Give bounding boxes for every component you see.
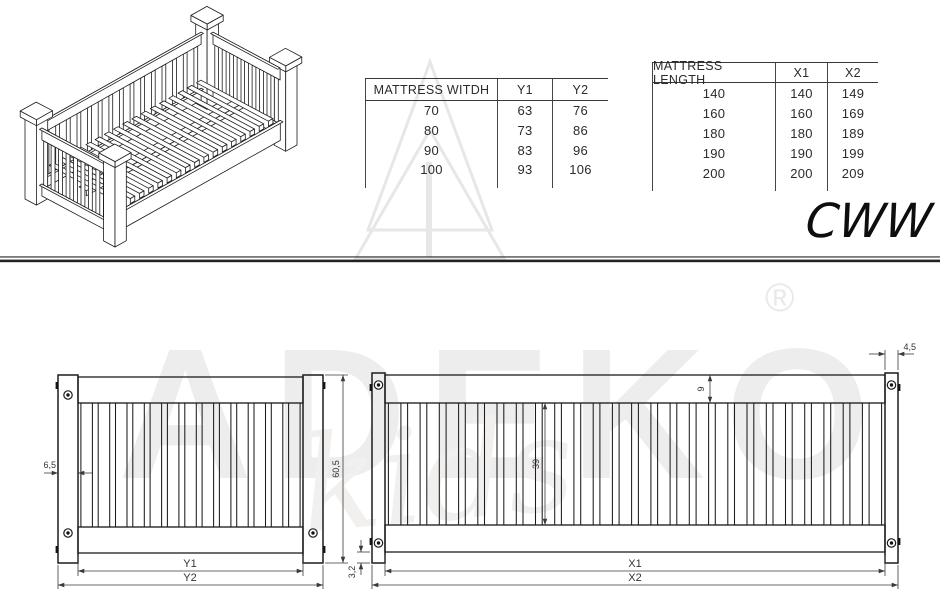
mattress-width-table: MATTRESS WITDHY1Y27063768073869083961009… [365, 78, 608, 188]
table-border-extension [652, 183, 775, 191]
table-cell: 190 [775, 143, 827, 163]
table-border-extension [365, 180, 497, 188]
side-panel-front-view [370, 373, 901, 563]
dim-label-bottom-overhang: 3,2 [347, 566, 357, 579]
table-cell: 140 [652, 83, 775, 103]
technical-drawing-page: ADEKO kids ® [0, 0, 940, 590]
dim-label-x2: X2 [628, 572, 641, 584]
dim-label-y1: Y1 [183, 558, 196, 570]
table-cell: 160 [652, 103, 775, 123]
table-cell: 73 [497, 121, 552, 141]
table-cell: 180 [775, 123, 827, 143]
table-cell: 76 [552, 101, 608, 121]
product-code: CWW [803, 194, 933, 249]
dim-label-y-post-width: 6,5 [43, 460, 56, 470]
dim-label-x-post-width: 4,5 [903, 342, 916, 352]
table-cell: 190 [652, 143, 775, 163]
column-header: X1 [775, 63, 827, 82]
table-cell: 90 [365, 140, 497, 160]
dim-label-rail-height: 9 [696, 386, 706, 391]
table-cell: 100 [365, 160, 497, 180]
table-cell: 199 [827, 143, 878, 163]
table-cell: 96 [552, 140, 608, 160]
table-border-extension [552, 180, 608, 188]
column-header: Y2 [552, 79, 608, 100]
dim-label-x1: X1 [628, 558, 641, 570]
table-cell: 93 [497, 160, 552, 180]
table-cell: 189 [827, 123, 878, 143]
table-cell: 63 [497, 101, 552, 121]
table-border-extension [775, 183, 827, 191]
table-border-extension [827, 183, 878, 191]
table-cell: 140 [775, 83, 827, 103]
column-header: X2 [827, 63, 878, 82]
table-border-extension [497, 180, 552, 188]
table-cell: 200 [775, 163, 827, 183]
table-cell: 149 [827, 83, 878, 103]
table-cell: 80 [365, 121, 497, 141]
table-cell: 106 [552, 160, 608, 180]
dim-label-y-total-height: 60,5 [331, 460, 341, 478]
table-cell: 160 [775, 103, 827, 123]
headboard-front-view [56, 375, 326, 563]
column-header: Y1 [497, 79, 552, 100]
dim-label-y2: Y2 [183, 572, 196, 584]
table-cell: 180 [652, 123, 775, 143]
table-cell: 209 [827, 163, 878, 183]
column-header: MATTRESS LENGTH [652, 63, 775, 82]
column-header: MATTRESS WITDH [365, 79, 497, 100]
table-cell: 83 [497, 140, 552, 160]
bed-isometric-view [20, 6, 302, 247]
mattress-length-table: MATTRESS LENGTHX1X2140140149160160169180… [652, 62, 878, 191]
dim-label-slat-height: 39 [531, 459, 541, 469]
table-cell: 86 [552, 121, 608, 141]
table-cell: 70 [365, 101, 497, 121]
table-cell: 169 [827, 103, 878, 123]
separator-line [0, 256, 940, 262]
table-cell: 200 [652, 163, 775, 183]
